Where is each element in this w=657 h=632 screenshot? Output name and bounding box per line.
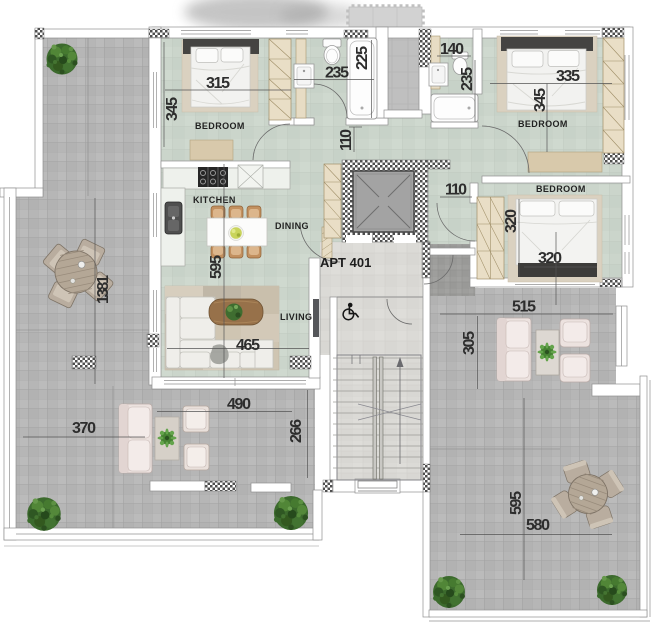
svg-text:140: 140 (440, 41, 464, 58)
svg-text:1381: 1381 (95, 275, 112, 304)
svg-text:490: 490 (227, 396, 251, 413)
svg-text:110: 110 (445, 182, 467, 199)
svg-text:BEDROOM: BEDROOM (536, 184, 586, 194)
svg-text:KITCHEN: KITCHEN (193, 195, 236, 205)
svg-text:595: 595 (508, 491, 525, 515)
svg-text:515: 515 (512, 299, 536, 316)
svg-text:DINING: DINING (275, 221, 309, 231)
svg-text:APT 401: APT 401 (320, 255, 371, 270)
svg-text:110: 110 (338, 129, 355, 151)
svg-text:BEDROOM: BEDROOM (195, 121, 245, 131)
svg-text:LIVING: LIVING (280, 312, 312, 322)
svg-text:335: 335 (556, 68, 580, 85)
svg-text:266: 266 (288, 419, 305, 443)
svg-text:225: 225 (354, 46, 371, 70)
svg-text:465: 465 (236, 337, 260, 354)
svg-text:315: 315 (206, 75, 230, 92)
svg-text:595: 595 (208, 255, 225, 279)
svg-text:345: 345 (532, 88, 549, 112)
svg-text:320: 320 (503, 209, 520, 233)
svg-text:345: 345 (164, 97, 181, 121)
svg-text:235: 235 (459, 67, 476, 91)
svg-text:320: 320 (538, 250, 562, 267)
svg-text:580: 580 (526, 517, 550, 534)
svg-text:370: 370 (72, 420, 96, 437)
svg-text:235: 235 (325, 65, 349, 82)
svg-text:305: 305 (461, 331, 478, 355)
svg-text:BEDROOM: BEDROOM (518, 119, 568, 129)
